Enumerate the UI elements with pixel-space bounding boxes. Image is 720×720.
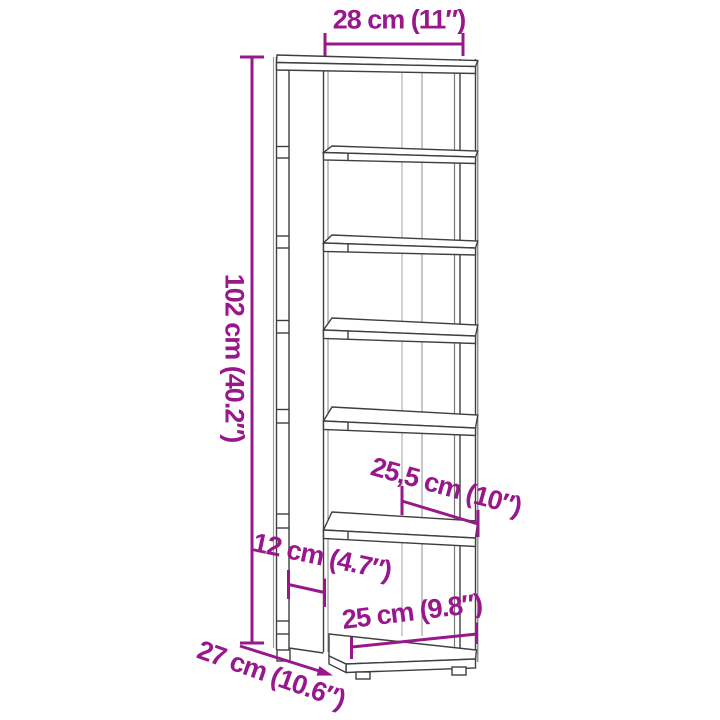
label-width: 28 cm (11″) [333, 5, 466, 36]
dimension-line-side-depth [289, 570, 325, 607]
label-height: 102 cm (40.2″) [219, 274, 250, 443]
diagram-canvas: 28 cm (11″) 102 cm (40.2″) 25,5 cm (10″)… [0, 0, 720, 720]
right-post [455, 59, 478, 662]
dimension-line-width [325, 33, 463, 56]
arrowhead [317, 666, 334, 676]
shoe-rack-frame [274, 55, 478, 679]
